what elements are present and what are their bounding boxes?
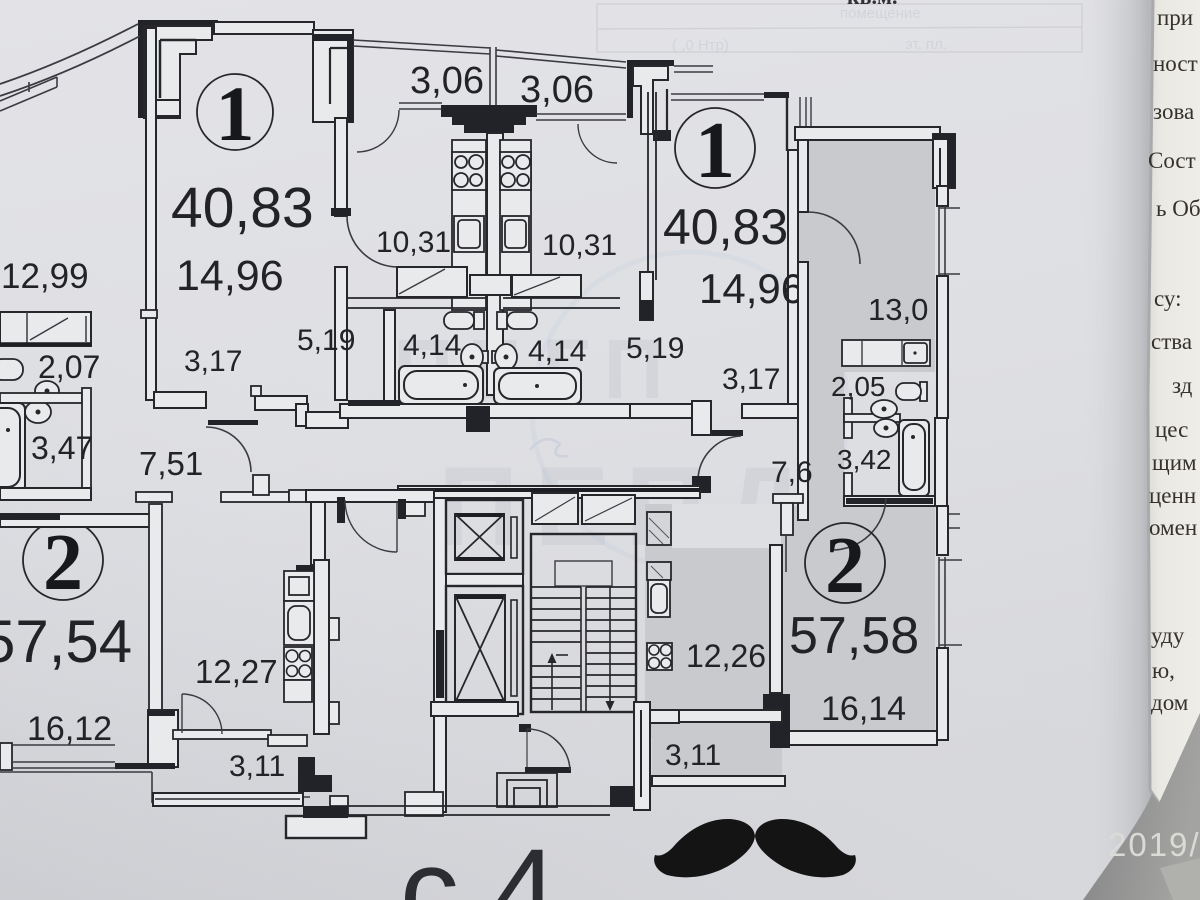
- svg-text:12,26: 12,26: [686, 638, 766, 674]
- svg-text:12,27: 12,27: [195, 653, 278, 690]
- svg-text:4,14: 4,14: [528, 335, 586, 368]
- svg-text:эт. пл.: эт. пл.: [905, 36, 947, 53]
- svg-text:1: 1: [216, 70, 255, 157]
- svg-text:омен: омен: [1149, 515, 1197, 540]
- svg-text:40,83: 40,83: [663, 199, 788, 255]
- svg-text:3,06: 3,06: [410, 60, 484, 102]
- svg-text:2,05: 2,05: [831, 371, 886, 402]
- svg-text:зд: зд: [1172, 373, 1193, 398]
- svg-text:2: 2: [43, 519, 83, 607]
- svg-text:7,6: 7,6: [771, 456, 813, 489]
- svg-text:4,14: 4,14: [403, 329, 461, 362]
- svg-text:12,99: 12,99: [1, 257, 89, 296]
- svg-text:2: 2: [825, 522, 865, 610]
- svg-text:7,51: 7,51: [139, 445, 203, 482]
- svg-text:ност: ност: [1153, 51, 1198, 76]
- svg-text:дом: дом: [1151, 690, 1189, 715]
- svg-text:( ,0 Нтр): ( ,0 Нтр): [672, 37, 729, 54]
- svg-text:зова: зова: [1153, 99, 1194, 124]
- svg-text:ценн: ценн: [1149, 483, 1196, 508]
- svg-text:3,17: 3,17: [184, 345, 242, 378]
- svg-text:цес: цес: [1155, 417, 1188, 442]
- svg-text:2019/: 2019/: [1108, 826, 1200, 863]
- svg-text:3,11: 3,11: [229, 750, 285, 783]
- svg-text:3,06: 3,06: [520, 69, 594, 111]
- svg-text:3,47: 3,47: [31, 430, 93, 466]
- svg-text:уду: уду: [1151, 623, 1185, 648]
- svg-text:40,83: 40,83: [171, 176, 314, 240]
- svg-text:3,11: 3,11: [665, 739, 721, 772]
- svg-text:14,96: 14,96: [176, 252, 284, 300]
- svg-text:щим: щим: [1152, 450, 1197, 475]
- svg-text:ю,: ю,: [1152, 658, 1175, 683]
- svg-text:су:: су:: [1154, 286, 1182, 311]
- svg-text:ства: ства: [1151, 329, 1192, 354]
- svg-text:2,07: 2,07: [38, 349, 100, 385]
- svg-text:16,14: 16,14: [821, 690, 906, 728]
- svg-text:1: 1: [695, 107, 735, 195]
- svg-text:57,58: 57,58: [789, 607, 919, 665]
- svg-text:3,42: 3,42: [837, 444, 892, 475]
- svg-text:кв.м.: кв.м.: [847, 0, 898, 9]
- svg-text:с.4: с.4: [400, 825, 557, 900]
- svg-text:10,31: 10,31: [376, 226, 451, 259]
- svg-text:57,54: 57,54: [0, 608, 132, 675]
- svg-text:16,12: 16,12: [27, 710, 112, 748]
- svg-text:5,19: 5,19: [626, 332, 684, 365]
- svg-text:ь Об: ь Об: [1156, 196, 1200, 221]
- svg-text:при: при: [1157, 5, 1193, 30]
- svg-text:3,17: 3,17: [722, 363, 780, 396]
- svg-text:5,19: 5,19: [297, 324, 355, 357]
- svg-text:14,96: 14,96: [699, 265, 804, 312]
- svg-text:Сост: Сост: [1148, 148, 1196, 173]
- svg-text:10,31: 10,31: [542, 229, 617, 262]
- svg-text:13,0: 13,0: [868, 292, 928, 327]
